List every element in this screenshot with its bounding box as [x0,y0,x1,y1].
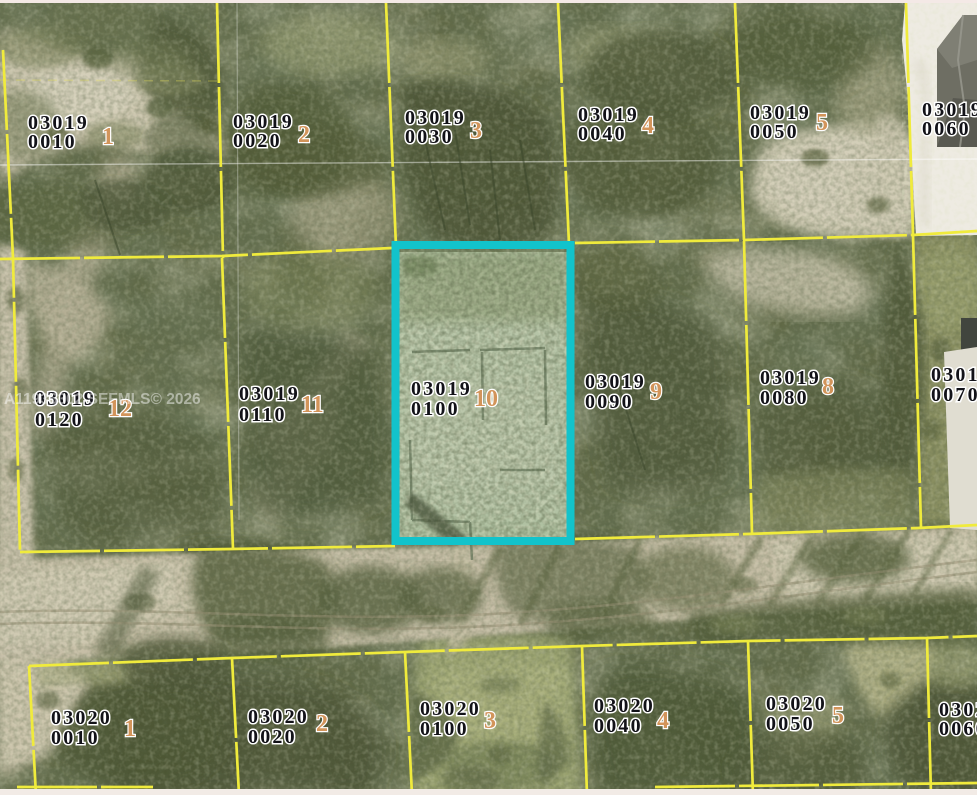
svg-text:03020: 03020 [420,698,481,720]
svg-text:3: 3 [470,118,482,144]
svg-text:5: 5 [832,703,844,729]
svg-text:03020: 03020 [766,693,827,715]
svg-text:0090: 0090 [585,391,634,413]
svg-text:0040: 0040 [578,123,627,145]
svg-text:0050: 0050 [766,713,815,735]
svg-text:3: 3 [484,708,496,734]
svg-text:A11936302 SEFMLS© 2026: A11936302 SEFMLS© 2026 [4,391,201,408]
svg-text:0110: 0110 [239,404,287,426]
svg-text:2: 2 [298,122,310,148]
svg-text:4: 4 [642,113,654,139]
svg-text:1: 1 [124,716,136,742]
svg-text:0120: 0120 [35,409,84,431]
svg-text:5: 5 [816,110,828,136]
svg-text:4: 4 [657,708,669,734]
svg-text:0010: 0010 [28,131,77,153]
svg-text:03019: 03019 [411,378,472,400]
svg-text:0020: 0020 [248,726,297,748]
svg-text:0020: 0020 [233,130,282,152]
svg-text:03019: 03019 [585,371,646,393]
svg-text:0100: 0100 [420,718,469,740]
svg-text:0080: 0080 [760,387,809,409]
svg-text:03020: 03020 [248,706,309,728]
svg-text:0030: 0030 [405,126,454,148]
svg-text:10: 10 [474,386,498,412]
svg-text:03020: 03020 [51,707,112,729]
svg-text:03019: 03019 [760,367,821,389]
svg-text:8: 8 [822,374,834,400]
svg-text:0060: 0060 [922,118,971,140]
svg-text:2: 2 [316,711,328,737]
svg-text:9: 9 [650,379,662,405]
svg-text:11: 11 [301,392,324,418]
svg-text:03019: 03019 [239,383,300,405]
svg-text:0100: 0100 [411,398,460,420]
svg-text:0301: 0301 [931,364,977,386]
svg-text:0050: 0050 [750,121,799,143]
svg-text:0040: 0040 [594,715,643,737]
svg-text:0010: 0010 [51,727,100,749]
svg-text:0070: 0070 [931,384,977,406]
svg-text:03020: 03020 [594,695,655,717]
svg-text:0060: 0060 [939,718,977,740]
svg-text:1: 1 [102,124,114,150]
